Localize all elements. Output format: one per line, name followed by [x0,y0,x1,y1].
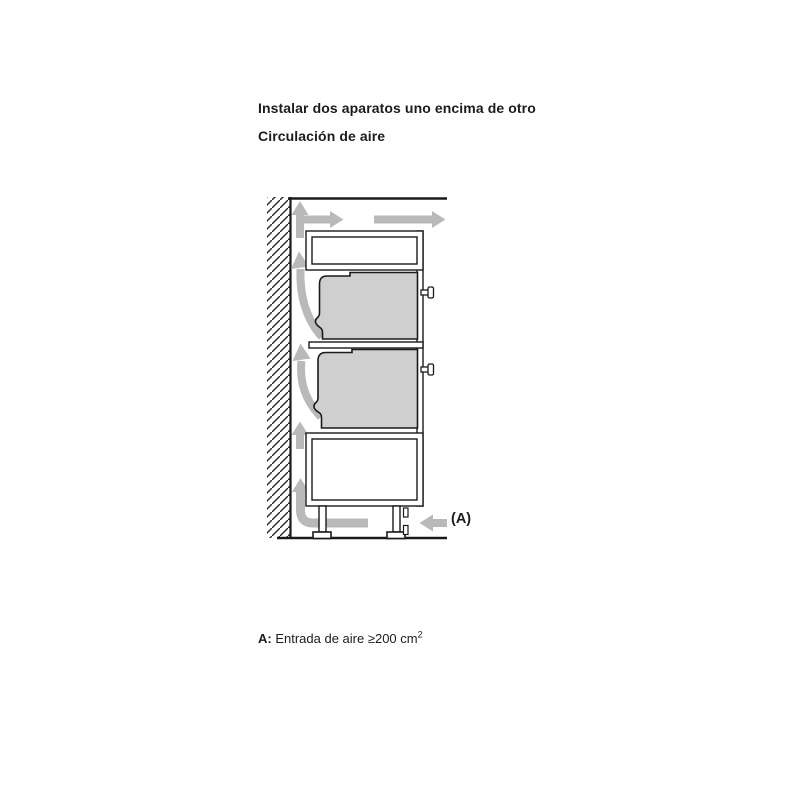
diagram-canvas [0,0,800,800]
lower-oven [314,350,418,429]
airflow-up-top-arrow [292,201,309,238]
airflow-up-mid-arrow [292,422,309,450]
airflow-inlet-l-arrow [292,478,368,523]
subsection-title: Circulación de aire [258,128,385,144]
caption-key: A: [258,631,272,646]
right-leg [393,506,400,532]
airflow-swoosh-upper-oven [291,252,322,338]
air-inlet-label: (A) [451,511,471,527]
wall-hatching [267,197,291,538]
tall-cabinet [306,231,434,539]
figure-caption: A: Entrada de aire ≥200 cm2 [258,631,423,646]
caption-text: Entrada de aire ≥200 cm [272,631,418,646]
cabinet-right-panel [417,231,423,506]
right-foot [387,532,405,539]
left-leg [319,506,326,532]
upper-oven-knob [421,287,434,298]
plinth-dashed-line [404,508,409,535]
airflow-swoosh-lower-oven [293,344,322,418]
airflow-arrows [291,201,447,532]
air-inlet-arrow [420,515,448,532]
lower-oven-knob [421,364,434,375]
airflow-right-long-arrow [374,211,446,228]
caption-superscript: 2 [418,630,423,640]
bottom-compartment [306,433,423,506]
intermediate-shelf [309,342,423,348]
cabinet-legs [313,506,405,539]
top-niche [306,231,423,270]
airflow-right-short-arrow [303,211,344,228]
section-title: Instalar dos aparatos uno encima de otro [258,100,536,116]
upper-oven [315,273,417,340]
left-foot [313,532,331,539]
air-circulation-diagram: (A) [0,0,800,800]
